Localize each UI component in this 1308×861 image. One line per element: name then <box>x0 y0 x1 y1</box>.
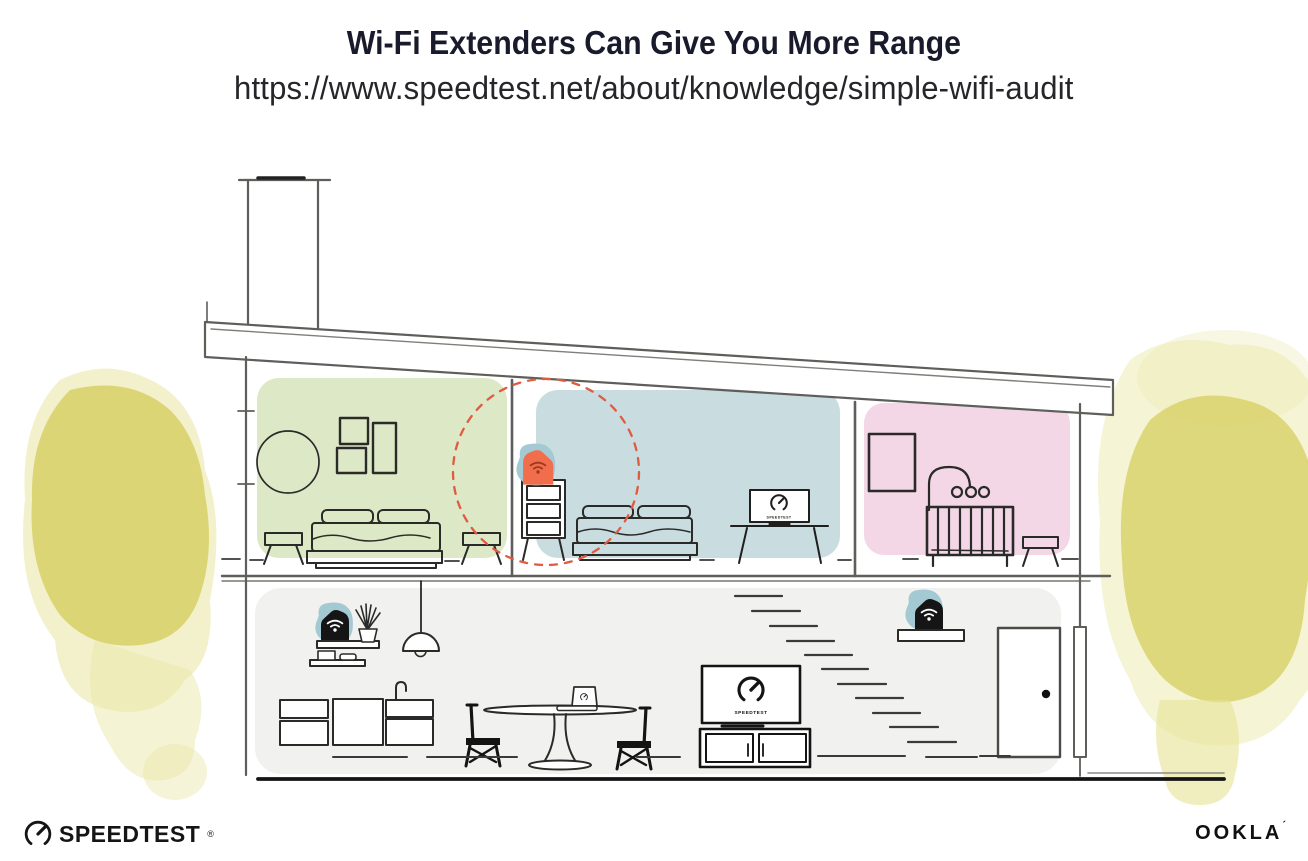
foliage-left <box>23 369 216 800</box>
living-room-tv: SPEEDTEST <box>702 666 800 726</box>
cup <box>318 651 335 660</box>
tv-speedtest-label: SPEEDTEST <box>734 710 767 716</box>
tv-console <box>700 729 810 767</box>
wifi-extender <box>516 444 555 486</box>
room-green-wall <box>257 378 507 558</box>
registered-mark: ® <box>207 829 214 839</box>
speedtest-logo: SPEEDTEST ® <box>24 820 214 848</box>
ookla-accent-mark: ´ <box>1282 820 1286 832</box>
mid-floor-band <box>222 576 1110 581</box>
room-pink-wall <box>864 403 1070 555</box>
chimney <box>239 178 330 329</box>
house-illustration: SPEEDTEST <box>0 0 1308 861</box>
ookla-logo: OOKLA´ <box>1195 820 1286 845</box>
foliage-right <box>1098 330 1308 805</box>
mobile-ball <box>966 487 976 497</box>
speedtest-wordmark: SPEEDTEST <box>59 821 200 848</box>
downspout <box>1074 627 1086 757</box>
speedtest-gauge-icon <box>24 820 52 848</box>
ookla-wordmark: OOKLA <box>1195 822 1282 844</box>
infographic-page: Wi-Fi Extenders Can Give You More Range … <box>0 0 1308 861</box>
door-knob <box>1042 690 1050 698</box>
wall-shelf-with-router <box>315 603 380 648</box>
room-blue-wall <box>536 390 840 558</box>
mobile-ball <box>979 487 989 497</box>
bowl <box>340 654 356 660</box>
front-door <box>998 628 1060 757</box>
mobile-ball <box>952 487 962 497</box>
tv-speedtest-label: SPEEDTEST <box>767 516 792 520</box>
